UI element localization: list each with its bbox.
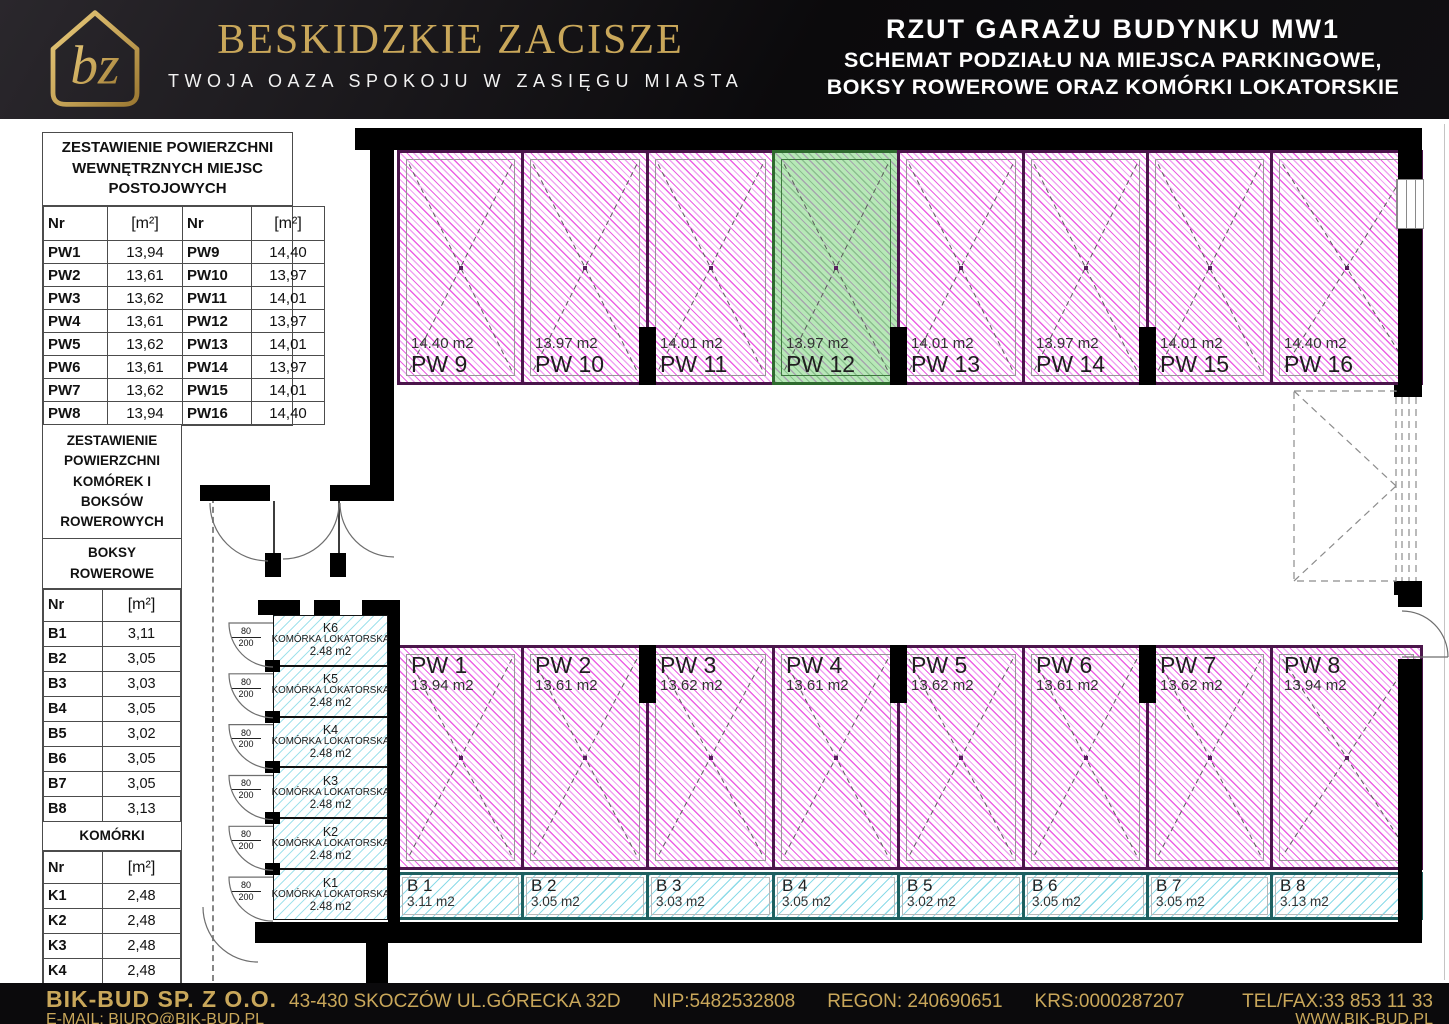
area-cell: 13,97 (252, 310, 325, 333)
id-cell: PW15 (183, 379, 252, 402)
stall-center-dot (1084, 756, 1088, 760)
area-label: 14.01 m2 (911, 336, 980, 352)
area-label: 3.13 m2 (1280, 895, 1329, 910)
site-boundary-dashed-line (212, 487, 214, 981)
table-row: PW113,94PW914,40 (44, 241, 325, 264)
storage-table-sections: BOKSY ROWEROWENr[m²]B13,11B23,05B33,03B4… (43, 539, 181, 1024)
storage-type-label: KOMÓRKA LOKATORSKA (272, 686, 390, 697)
wall-post (265, 711, 280, 723)
parking-stall-pw15: 14.01 m2PW 15 (1146, 150, 1273, 385)
area-label: 2.48 m2 (310, 850, 352, 863)
area-label: 13.94 m2 (1284, 678, 1347, 694)
bike-box-id-label: B 4 (782, 877, 831, 895)
stall-id-label: PW 7 (1160, 653, 1223, 678)
storage-type-label: KOMÓRKA LOKATORSKA (272, 635, 390, 646)
stall-id-label: PW 14 (1036, 352, 1105, 377)
area-label: 3.05 m2 (1032, 895, 1081, 910)
stall-label: 14.40 m2PW 9 (411, 336, 474, 377)
area-label: 3.02 m2 (907, 895, 956, 910)
area-label: 13.62 m2 (1160, 678, 1223, 694)
header-bar: bz BESKIDZKIE ZACISZE TWOJA OAZA SPOKOJU… (0, 0, 1449, 119)
door-width-value: 80 (231, 728, 261, 740)
area-cell: 14,40 (252, 402, 325, 425)
stall-id-label: PW 4 (786, 653, 849, 678)
stall-label: PW 113.94 m2 (411, 653, 474, 694)
bike-box-id-label: B 8 (1280, 877, 1329, 895)
table-row: PW813,94PW1614,40 (44, 402, 325, 425)
table-row: PW513,62PW1314,01 (44, 333, 325, 356)
drawing-frame-edge (1444, 124, 1445, 980)
stall-label: PW 213.61 m2 (535, 653, 598, 694)
wall-bottom (255, 922, 1422, 943)
area-label: 3.05 m2 (1156, 895, 1205, 910)
id-cell: K4 (44, 959, 103, 984)
wall-top (355, 128, 1422, 150)
table-row: K22,48 (44, 909, 181, 934)
wall-right-4 (1398, 659, 1422, 922)
stall-id-label: PW 1 (411, 653, 474, 678)
parking-stall-pw3: PW 313.62 m2 (646, 645, 775, 870)
id-cell: PW4 (44, 310, 108, 333)
id-cell: PW7 (44, 379, 108, 402)
area-label: 2.48 m2 (310, 646, 352, 659)
wall-above-storage-a (258, 600, 300, 615)
wall-left-upper (370, 128, 394, 485)
stall-label: PW 713.62 m2 (1160, 653, 1223, 694)
gate-post-bottom (1394, 581, 1422, 595)
door-width-value: 80 (231, 626, 261, 638)
area-label: 3.05 m2 (531, 895, 580, 910)
door-width-value: 80 (231, 880, 261, 892)
stall-label: 14.01 m2PW 15 (1160, 336, 1229, 377)
wall-pillar (639, 327, 656, 385)
storage-room-k5: K5KOMÓRKA LOKATORSKA2.48 m2 (273, 666, 388, 717)
door-height-value: 200 (231, 790, 261, 801)
stall-label: B 53.02 m2 (907, 877, 956, 910)
footer-website: WWW.BIK-BUD.PL (1295, 1011, 1433, 1024)
vestibule-door-arc-3 (340, 503, 394, 557)
id-cell: K2 (44, 909, 103, 934)
drawing-title: RZUT GARAŻU BUDYNKU MW1 SCHEMAT PODZIAŁU… (783, 14, 1443, 100)
bike-box-id-label: B 6 (1032, 877, 1081, 895)
footer-address: 43-430 SKOCZÓW UL.GÓRECKA 32D (289, 991, 621, 1013)
stall-id-label: PW 13 (911, 352, 980, 377)
area-cell: 3,11 (103, 621, 181, 646)
bike-box-b3: B 33.03 m2 (646, 872, 775, 920)
storage-room-k2: K2KOMÓRKA LOKATORSKA2.48 m2 (273, 818, 388, 869)
footer-bar: BIK-BUD SP. Z O.O. 43-430 SKOCZÓW UL.GÓR… (0, 983, 1449, 1024)
area-cell: 3,05 (103, 746, 181, 771)
door-dimension-label: 80200 (231, 778, 261, 801)
area-cell: 2,48 (103, 934, 181, 959)
area-label: 2.48 m2 (310, 799, 352, 812)
area-label: 13.94 m2 (411, 678, 474, 694)
table-row: PW213,61PW1013,97 (44, 264, 325, 287)
area-label: 14.01 m2 (660, 336, 727, 352)
brand-block: BESKIDZKIE ZACISZE TWOJA OAZA SPOKOJU W … (168, 0, 733, 119)
area-cell: 13,61 (108, 310, 183, 333)
stall-center-dot (583, 266, 587, 270)
bike-box-b7: B 73.05 m2 (1146, 872, 1273, 920)
wall-right-1 (1398, 150, 1422, 179)
storage-header-row: Nr[m²] (44, 852, 181, 884)
id-cell: B2 (44, 646, 103, 671)
table-row: K42,48 (44, 959, 181, 984)
parking-stall-pw6: PW 613.61 m2 (1022, 645, 1149, 870)
stall-label: PW 813.94 m2 (1284, 653, 1347, 694)
stall-center-dot (1084, 266, 1088, 270)
footer-krs: KRS:0000287207 (1035, 991, 1185, 1013)
area-cell: 13,62 (108, 333, 183, 356)
bike-box-b1: B 13.11 m2 (397, 872, 524, 920)
brand-name: BESKIDZKIE ZACISZE (168, 16, 733, 64)
parking-stall-pw2: PW 213.61 m2 (521, 645, 649, 870)
column-header-area: [m²] (103, 589, 181, 621)
stall-id-label: PW 12 (786, 352, 855, 377)
table-row: B23,05 (44, 646, 181, 671)
parking-stall-pw11: 14.01 m2PW 11 (646, 150, 775, 385)
area-label: 13.62 m2 (911, 678, 974, 694)
id-cell: PW6 (44, 356, 108, 379)
door-height-value: 200 (231, 638, 261, 649)
stall-id-label: PW 10 (535, 352, 604, 377)
area-cell: 3,02 (103, 721, 181, 746)
id-cell: PW9 (183, 241, 252, 264)
storage-type-label: KOMÓRKA LOKATORSKA (272, 788, 390, 799)
storage-section-title: KOMÓRKI (43, 822, 181, 851)
area-cell: 13,94 (108, 402, 183, 425)
table-row: PW613,61PW1413,97 (44, 356, 325, 379)
area-label: 3.03 m2 (656, 895, 705, 910)
drawing-title-line1: RZUT GARAŻU BUDYNKU MW1 (783, 14, 1443, 45)
area-cell: 14,01 (252, 333, 325, 356)
wall-pillar (1139, 645, 1156, 703)
stall-label: PW 513.62 m2 (911, 653, 974, 694)
area-label: 13.62 m2 (660, 678, 723, 694)
area-cell: 3,05 (103, 696, 181, 721)
brand-logo: bz (36, 7, 154, 112)
stall-id-label: PW 9 (411, 352, 474, 377)
id-cell: PW10 (183, 264, 252, 287)
column-header-area: [m²] (252, 207, 325, 241)
door-dimension-label: 80200 (231, 728, 261, 751)
stall-label: B 23.05 m2 (531, 877, 580, 910)
door-height-value: 200 (231, 739, 261, 750)
parking-stall-pw1: PW 113.94 m2 (397, 645, 524, 870)
area-cell: 14,01 (252, 287, 325, 310)
stall-id-label: PW 11 (660, 352, 727, 377)
svg-text:bz: bz (70, 34, 119, 95)
parking-table-header-row: Nr[m²]Nr[m²] (44, 207, 325, 241)
area-cell: 13,61 (108, 356, 183, 379)
id-cell: B7 (44, 771, 103, 796)
stall-center-dot (583, 756, 587, 760)
id-cell: PW14 (183, 356, 252, 379)
wall-post-vestibule-2 (330, 553, 346, 577)
stall-id-label: PW 6 (1036, 653, 1099, 678)
vestibule-door-arc-1 (210, 503, 268, 561)
stall-center-dot (834, 756, 838, 760)
wall-right-3 (1398, 595, 1422, 607)
wall-above-storage-b (314, 600, 340, 615)
storage-room-k1: K1KOMÓRKA LOKATORSKA2.48 m2 (273, 869, 388, 920)
parking-table-grid: Nr[m²]Nr[m²] PW113,94PW914,40PW213,61PW1… (43, 206, 325, 425)
id-cell: PW11 (183, 287, 252, 310)
area-label: 3.05 m2 (782, 895, 831, 910)
footer-nip: NIP:5482532808 (653, 991, 796, 1013)
stall-label: 14.01 m2PW 13 (911, 336, 980, 377)
column-header-nr: Nr (44, 589, 103, 621)
wall-pillar (890, 327, 907, 385)
gate-swing-diagonal-lower (1294, 486, 1396, 581)
door-dimension-label: 80200 (231, 677, 261, 700)
storage-table-title: ZESTAWIENIE POWIERZCHNI KOMÓREK I BOKSÓW… (43, 425, 181, 539)
area-label: 13.61 m2 (535, 678, 598, 694)
table-row: B73,05 (44, 771, 181, 796)
wall-post (265, 812, 280, 824)
column-header-nr: Nr (44, 852, 103, 884)
stall-center-dot (459, 266, 463, 270)
storage-type-label: KOMÓRKA LOKATORSKA (272, 737, 390, 748)
footer-line1: BIK-BUD SP. Z O.O. 43-430 SKOCZÓW UL.GÓR… (0, 983, 1449, 1013)
area-label: 2.48 m2 (310, 901, 352, 914)
id-cell: PW16 (183, 402, 252, 425)
table-row: B33,03 (44, 671, 181, 696)
door-width-value: 80 (231, 677, 261, 689)
area-cell: 3,03 (103, 671, 181, 696)
stall-label: B 43.05 m2 (782, 877, 831, 910)
area-label: 2.48 m2 (310, 697, 352, 710)
area-cell: 13,61 (108, 264, 183, 287)
storage-areas-table: ZESTAWIENIE POWIERZCHNI KOMÓREK I BOKSÓW… (42, 424, 182, 1024)
storage-id-label: K3 (323, 774, 338, 788)
parking-stall-pw7: PW 713.62 m2 (1146, 645, 1273, 870)
door-width-value: 80 (231, 778, 261, 790)
door-height-value: 200 (231, 689, 261, 700)
house-monogram-icon: bz (36, 7, 154, 112)
id-cell: PW13 (183, 333, 252, 356)
gate-swing-diagonal-upper (1294, 391, 1396, 486)
bike-box-id-label: B 3 (656, 877, 705, 895)
id-cell: B1 (44, 621, 103, 646)
id-cell: PW8 (44, 402, 108, 425)
wall-pillar (890, 645, 907, 703)
parking-stall-pw4: PW 413.61 m2 (772, 645, 900, 870)
parking-areas-table: ZESTAWIENIE POWIERZCHNI WEWNĘTRZNYCH MIE… (42, 132, 293, 426)
id-cell: PW3 (44, 287, 108, 310)
id-cell: PW5 (44, 333, 108, 356)
area-label: 13.61 m2 (786, 678, 849, 694)
bike-box-b4: B 43.05 m2 (772, 872, 900, 920)
id-cell: B3 (44, 671, 103, 696)
wall-storage-right (388, 600, 400, 922)
door-width-value: 80 (231, 829, 261, 841)
area-cell: 13,62 (108, 379, 183, 402)
stall-label: B 33.03 m2 (656, 877, 705, 910)
id-cell: B6 (44, 746, 103, 771)
storage-id-label: K1 (323, 876, 338, 890)
stall-center-dot (1345, 756, 1349, 760)
id-cell: PW2 (44, 264, 108, 287)
window-right (1396, 179, 1424, 229)
stall-center-dot (1208, 266, 1212, 270)
table-row: B43,05 (44, 696, 181, 721)
stall-label: PW 613.61 m2 (1036, 653, 1099, 694)
storage-id-label: K6 (323, 621, 338, 635)
wall-post-vestibule-1 (265, 553, 281, 577)
table-row: B83,13 (44, 796, 181, 821)
parking-stall-pw10: 13.97 m2PW 10 (521, 150, 649, 385)
area-cell: 2,48 (103, 884, 181, 909)
stall-center-dot (709, 756, 713, 760)
area-cell: 13,97 (252, 356, 325, 379)
area-cell: 14,40 (252, 241, 325, 264)
stall-center-dot (459, 756, 463, 760)
table-row: K32,48 (44, 934, 181, 959)
stall-label: B 83.13 m2 (1280, 877, 1329, 910)
table-row: PW313,62PW1114,01 (44, 287, 325, 310)
stall-label: 14.01 m2PW 11 (660, 336, 727, 377)
parking-table-body: PW113,94PW914,40PW213,61PW1013,97PW313,6… (44, 241, 325, 425)
storage-section-title: BOKSY ROWEROWE (43, 539, 181, 589)
storage-header-row: Nr[m²] (44, 589, 181, 621)
bike-box-b2: B 23.05 m2 (521, 872, 649, 920)
stall-center-dot (1345, 266, 1349, 270)
stall-label: 13.97 m2PW 12 (786, 336, 855, 377)
area-label: 13.97 m2 (1036, 336, 1105, 352)
column-header-area: [m²] (108, 207, 183, 241)
area-cell: 2,48 (103, 959, 181, 984)
table-row: B13,11 (44, 621, 181, 646)
area-cell: 3,05 (103, 646, 181, 671)
stall-id-label: PW 3 (660, 653, 723, 678)
column-header-area: [m²] (103, 852, 181, 884)
storage-room-k4: K4KOMÓRKA LOKATORSKA2.48 m2 (273, 717, 388, 768)
area-cell: 13,62 (108, 287, 183, 310)
storage-id-label: K4 (323, 723, 338, 737)
footer-company: BIK-BUD SP. Z O.O. (46, 986, 277, 1013)
area-cell: 13,94 (108, 241, 183, 264)
area-cell: 13,97 (252, 264, 325, 287)
drawing-title-line2: SCHEMAT PODZIAŁU NA MIEJSCA PARKINGOWE, (783, 48, 1443, 73)
table-row: PW713,62PW1514,01 (44, 379, 325, 402)
footer-telephone: TEL/FAX:33 853 11 33 (1242, 991, 1433, 1013)
garage-plan-page: bz BESKIDZKIE ZACISZE TWOJA OAZA SPOKOJU… (0, 0, 1449, 1024)
wall-vestibule-top-left (200, 485, 270, 501)
area-label: 13.97 m2 (535, 336, 604, 352)
area-cell: 14,01 (252, 379, 325, 402)
storage-type-label: KOMÓRKA LOKATORSKA (272, 839, 390, 850)
brand-tagline: TWOJA OAZA SPOKOJU W ZASIĘGU MIASTA (168, 71, 733, 92)
storage-room-k3: K3KOMÓRKA LOKATORSKA2.48 m2 (273, 767, 388, 818)
stall-center-dot (1208, 756, 1212, 760)
stall-center-dot (959, 756, 963, 760)
wall-bottom-stub (366, 943, 388, 985)
parking-stall-pw14: 13.97 m2PW 14 (1022, 150, 1149, 385)
stall-label: 14.40 m2PW 16 (1284, 336, 1353, 377)
table-row: B63,05 (44, 746, 181, 771)
wall-pillar (639, 645, 656, 703)
door-dimension-label: 80200 (231, 829, 261, 852)
area-label: 3.11 m2 (407, 895, 455, 910)
table-row: PW413,61PW1213,97 (44, 310, 325, 333)
area-cell: 2,48 (103, 909, 181, 934)
wall-post (265, 761, 280, 773)
area-label: 2.48 m2 (310, 748, 352, 761)
storage-id-label: K5 (323, 672, 338, 686)
stall-center-dot (709, 266, 713, 270)
door-height-value: 200 (231, 841, 261, 852)
gate-swing-outline (1294, 391, 1396, 581)
stall-id-label: PW 16 (1284, 352, 1353, 377)
storage-id-label: K2 (323, 825, 338, 839)
bike-box-b6: B 63.05 m2 (1022, 872, 1149, 920)
parking-table-title: ZESTAWIENIE POWIERZCHNI WEWNĘTRZNYCH MIE… (43, 133, 292, 206)
id-cell: PW1 (44, 241, 108, 264)
id-cell: B8 (44, 796, 103, 821)
area-cell: 3,13 (103, 796, 181, 821)
id-cell: PW12 (183, 310, 252, 333)
gate-post-top (1394, 385, 1422, 397)
stall-label: B 13.11 m2 (407, 877, 455, 910)
column-header-nr: Nr (183, 207, 252, 241)
id-cell: K3 (44, 934, 103, 959)
column-header-nr: Nr (44, 207, 108, 241)
drawing-title-line3: BOKSY ROWEROWE ORAZ KOMÓRKI LOKATORSKIE (783, 75, 1443, 100)
stall-label: B 63.05 m2 (1032, 877, 1081, 910)
stall-label: PW 413.61 m2 (786, 653, 849, 694)
stall-id-label: PW 5 (911, 653, 974, 678)
area-cell: 3,05 (103, 771, 181, 796)
footer-regon: REGON: 240690651 (827, 991, 1002, 1013)
door-dimension-label: 80200 (231, 626, 261, 649)
door-height-value: 200 (231, 892, 261, 903)
storage-type-label: KOMÓRKA LOKATORSKA (272, 890, 390, 901)
stall-label: PW 313.62 m2 (660, 653, 723, 694)
wall-pillar (1139, 327, 1156, 385)
bike-box-id-label: B 7 (1156, 877, 1205, 895)
bike-box-id-label: B 1 (407, 877, 455, 895)
wall-post (265, 863, 280, 875)
bike-box-id-label: B 5 (907, 877, 956, 895)
bike-box-id-label: B 2 (531, 877, 580, 895)
stall-label: B 73.05 m2 (1156, 877, 1205, 910)
area-label: 14.01 m2 (1160, 336, 1229, 352)
area-label: 14.40 m2 (1284, 336, 1353, 352)
wall-post (265, 660, 280, 672)
table-row: K12,48 (44, 884, 181, 909)
stall-center-dot (834, 266, 838, 270)
area-label: 13.61 m2 (1036, 678, 1099, 694)
stall-center-dot (959, 266, 963, 270)
door-dimension-label: 80200 (231, 880, 261, 903)
bike-box-b5: B 53.02 m2 (897, 872, 1025, 920)
parking-stall-pw5: PW 513.62 m2 (897, 645, 1025, 870)
table-row: B53,02 (44, 721, 181, 746)
parking-stall-pw13: 14.01 m2PW 13 (897, 150, 1025, 385)
storage-section-grid: Nr[m²]B13,11B23,05B33,03B43,05B53,02B63,… (43, 589, 181, 822)
wall-right-2 (1398, 229, 1422, 385)
storage-section-body: B13,11B23,05B33,03B43,05B53,02B63,05B73,… (44, 621, 181, 821)
area-label: 14.40 m2 (411, 336, 474, 352)
area-label: 13.97 m2 (786, 336, 855, 352)
stall-id-label: PW 8 (1284, 653, 1347, 678)
stall-id-label: PW 2 (535, 653, 598, 678)
stall-label: 13.97 m2PW 14 (1036, 336, 1105, 377)
wall-vestibule-partition-2 (338, 501, 340, 555)
wall-vestibule-top-right (330, 485, 394, 501)
wall-vestibule-partition-1 (273, 501, 275, 555)
